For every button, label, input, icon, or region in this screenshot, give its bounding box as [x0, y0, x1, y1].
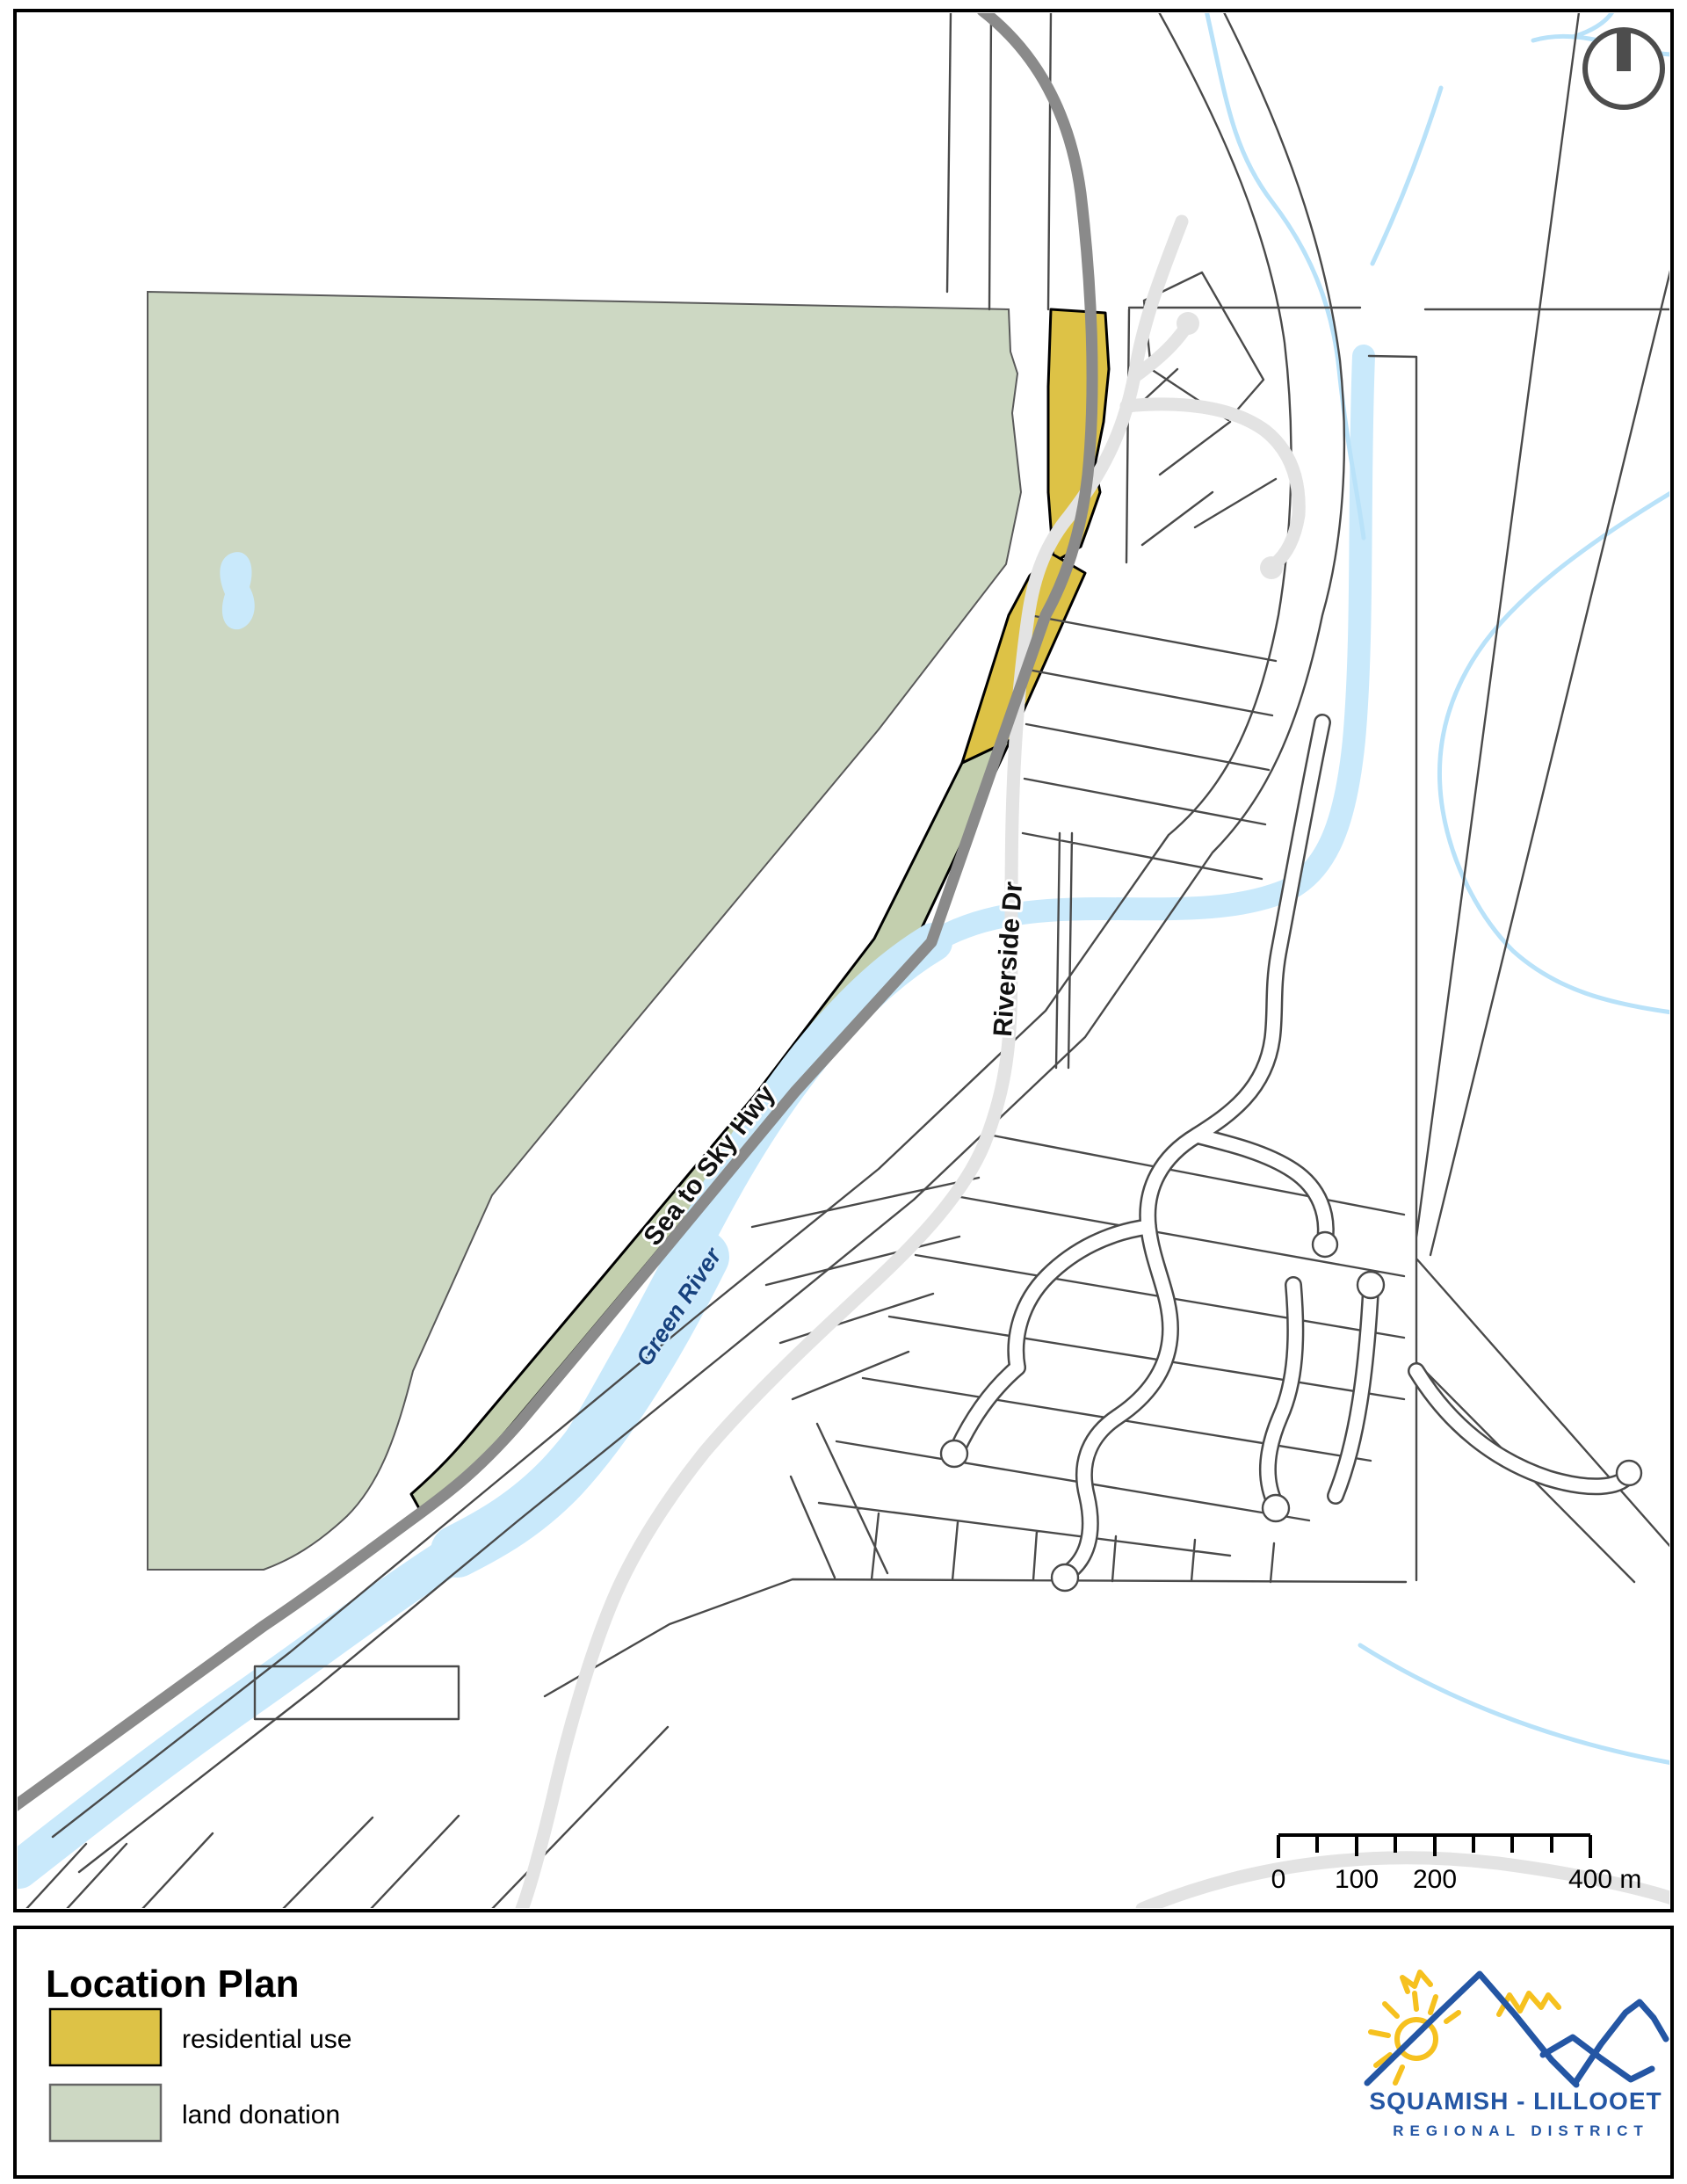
scale-100: 100 [1335, 1865, 1379, 1894]
location-plan-page: Sea to Sky Hwy Riverside Dr Green River … [0, 0, 1687, 2184]
legend-title: Location Plan [46, 1963, 299, 2006]
lake [220, 552, 254, 629]
north-arrow-icon [1585, 30, 1662, 107]
legend-label-residential: residential use [182, 2025, 351, 2054]
legend-panel: Location Plan residential use land donat… [15, 1927, 1672, 2177]
scale-0: 0 [1271, 1865, 1286, 1894]
scale-400: 400 m [1568, 1865, 1641, 1894]
logo-name-line1: SQUAMISH - LILLOOET [1369, 2087, 1662, 2115]
logo-name-line2: REGIONAL DISTRICT [1393, 2122, 1649, 2139]
legend-swatch-residential [50, 2009, 161, 2065]
location-plan-svg: Sea to Sky Hwy Riverside Dr Green River … [0, 0, 1687, 2184]
scale-200: 200 [1413, 1865, 1457, 1894]
legend-swatch-donation [50, 2085, 161, 2141]
legend-label-donation: land donation [182, 2101, 340, 2130]
